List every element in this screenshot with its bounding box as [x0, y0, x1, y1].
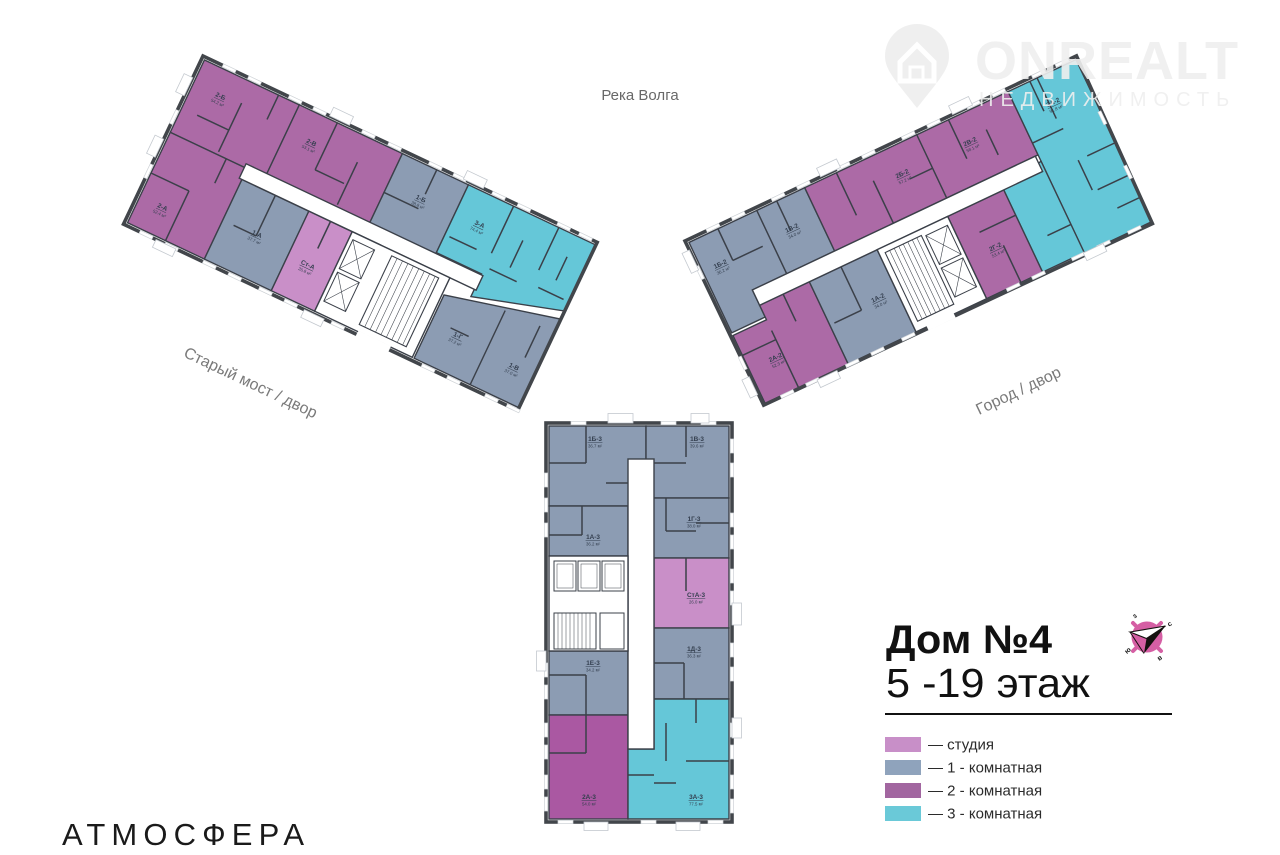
- svg-text:в: в: [1156, 654, 1164, 663]
- svg-text:СтА-3: СтА-3: [687, 592, 705, 599]
- svg-text:26.0 м²: 26.0 м²: [689, 600, 704, 605]
- svg-text:з: з: [1132, 612, 1140, 620]
- svg-text:36.7 м²: 36.7 м²: [588, 444, 603, 449]
- svg-text:38.0 м²: 38.0 м²: [687, 524, 702, 529]
- svg-text:ONREALT: ONREALT: [975, 31, 1239, 91]
- svg-text:Река Волга: Река Волга: [601, 87, 679, 104]
- svg-text:1Д-3: 1Д-3: [687, 646, 701, 653]
- svg-text:77.5 м²: 77.5 м²: [689, 802, 704, 807]
- svg-text:1Е-3: 1Е-3: [586, 660, 600, 667]
- svg-text:АТМОСФЕРА: АТМОСФЕРА: [62, 817, 304, 852]
- svg-text:Город / двор: Город / двор: [973, 364, 1064, 419]
- svg-text:3А-3: 3А-3: [689, 794, 703, 801]
- svg-text:1Б-3: 1Б-3: [588, 436, 602, 443]
- svg-text:54.0 м²: 54.0 м²: [582, 802, 597, 807]
- svg-text:1В-3: 1В-3: [690, 436, 704, 443]
- svg-text:36.3 м²: 36.3 м²: [687, 654, 702, 659]
- svg-text:— студия: — студия: [928, 737, 994, 754]
- svg-text:— 3 - комнатная: — 3 - комнатная: [928, 806, 1042, 823]
- svg-text:39.6 м²: 39.6 м²: [690, 444, 705, 449]
- svg-text:5 -19 этаж: 5 -19 этаж: [886, 660, 1091, 706]
- svg-text:1А-3: 1А-3: [586, 534, 600, 541]
- svg-text:НЕДВИЖИМОСТЬ: НЕДВИЖИМОСТЬ: [979, 89, 1236, 111]
- svg-text:ю: ю: [1124, 646, 1133, 655]
- svg-text:2А-3: 2А-3: [582, 794, 596, 801]
- svg-text:Дом №4: Дом №4: [886, 618, 1053, 662]
- svg-text:1Г-3: 1Г-3: [688, 516, 701, 523]
- svg-text:с: с: [1166, 621, 1173, 629]
- svg-text:Старый мост / двор: Старый мост / двор: [181, 345, 320, 423]
- svg-text:— 1 - комнатная: — 1 - комнатная: [928, 760, 1042, 777]
- svg-text:36.2 м²: 36.2 м²: [586, 542, 601, 547]
- svg-text:34.2 м²: 34.2 м²: [586, 668, 601, 673]
- svg-text:— 2 - комнатная: — 2 - комнатная: [928, 783, 1042, 800]
